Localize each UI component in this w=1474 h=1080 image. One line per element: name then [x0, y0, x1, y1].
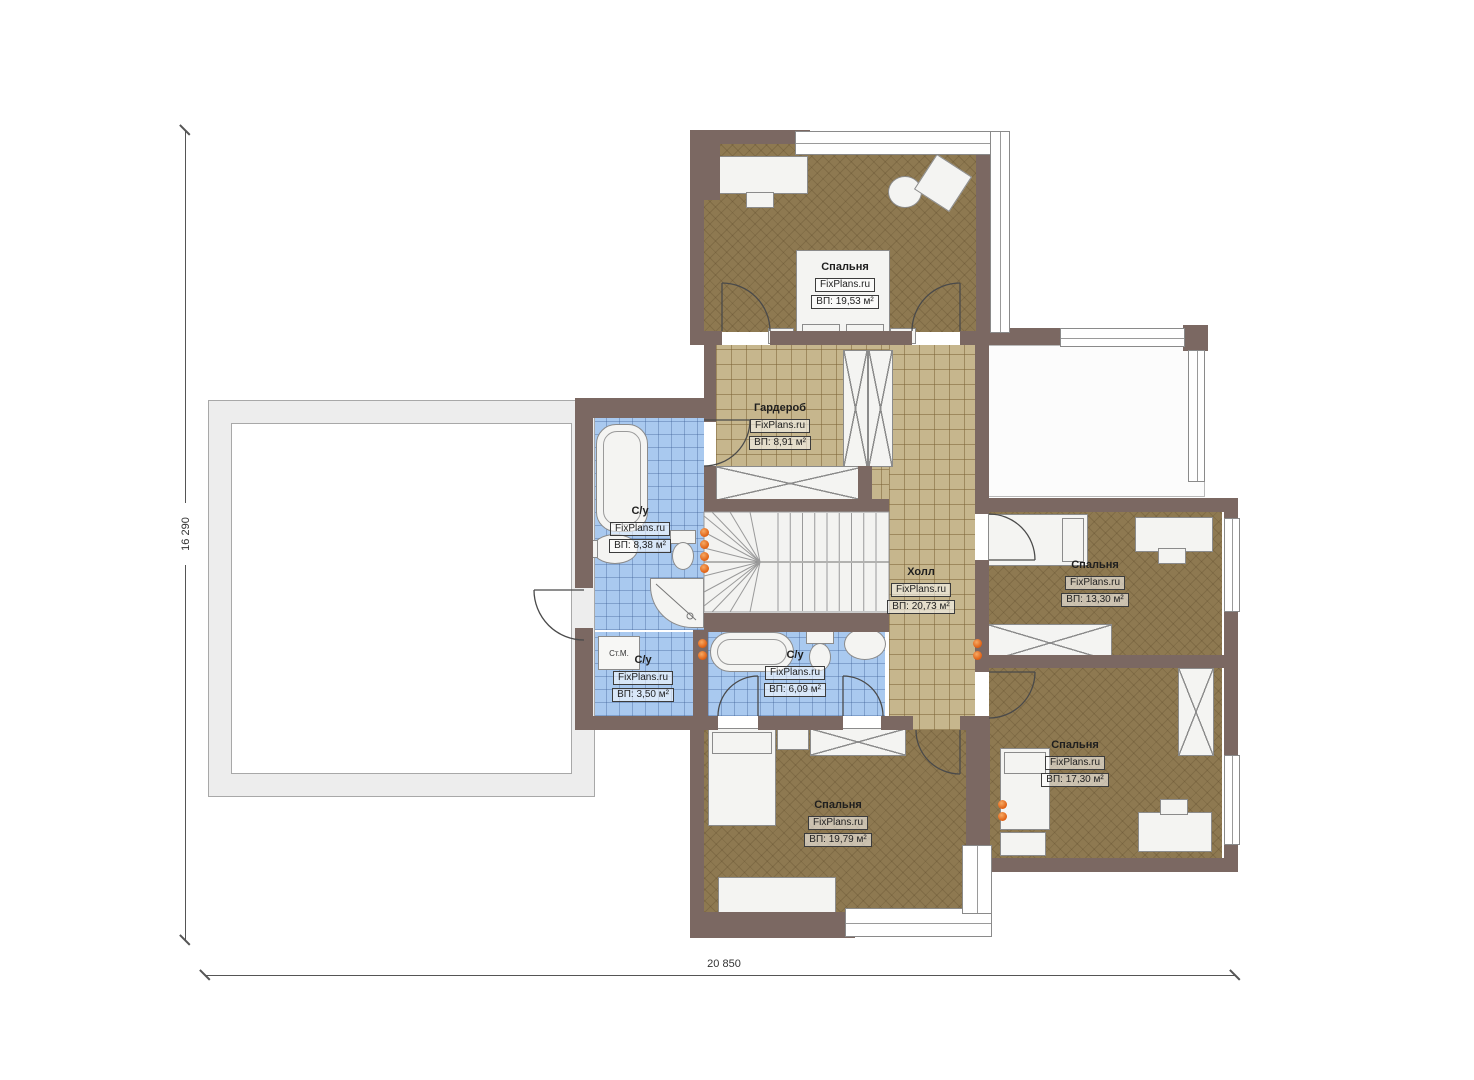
dimension-label-width: 20 850: [675, 958, 773, 970]
watermark: FixPlans.ru: [750, 419, 810, 433]
watermark: FixPlans.ru: [613, 671, 673, 685]
radiator-dot: [700, 540, 709, 549]
room-label-bathroom-left: С/у FixPlans.ru ВП: 8,38 м²: [585, 506, 695, 553]
room-name: Спальня: [1020, 740, 1130, 751]
room-name: Спальня: [790, 262, 900, 273]
staircase: [704, 512, 889, 612]
room-area: ВП: 20,73 м²: [887, 600, 954, 614]
watermark: FixPlans.ru: [891, 583, 951, 597]
radiator-dot: [700, 528, 709, 537]
room-area: ВП: 6,09 м²: [764, 683, 826, 697]
room-name: Спальня: [1040, 560, 1150, 571]
dimension-line-horizontal: [205, 975, 1235, 976]
room-label-bedroom-bottom: Спальня FixPlans.ru ВП: 19,79 м²: [783, 800, 893, 847]
room-name: Спальня: [783, 800, 893, 811]
room-label-bathroom-small: С/у FixPlans.ru ВП: 3,50 м²: [588, 655, 698, 702]
room-label-bathroom-middle: С/у FixPlans.ru ВП: 6,09 м²: [740, 650, 850, 697]
room-area: ВП: 3,50 м²: [612, 688, 674, 702]
room-name: Гардероб: [725, 403, 835, 414]
room-label-bedroom-right: Спальня FixPlans.ru ВП: 13,30 м²: [1040, 560, 1150, 607]
room-label-bedroom-top: Спальня FixPlans.ru ВП: 19,53 м²: [790, 262, 900, 309]
room-area: ВП: 17,30 м²: [1041, 773, 1108, 787]
dimension-label-height: 16 290: [180, 503, 192, 565]
room-name: С/у: [585, 506, 695, 517]
floor-plan-canvas: Ст.М.: [0, 0, 1474, 1080]
radiator-dot: [698, 639, 707, 648]
watermark: FixPlans.ru: [1065, 576, 1125, 590]
radiator-dot: [698, 651, 707, 660]
radiator-dot: [700, 552, 709, 561]
room-name: Холл: [866, 567, 976, 578]
watermark: FixPlans.ru: [610, 522, 670, 536]
room-area: ВП: 8,38 м²: [609, 539, 671, 553]
room-name: С/у: [588, 655, 698, 666]
watermark: FixPlans.ru: [765, 666, 825, 680]
room-name: С/у: [740, 650, 850, 661]
room-label-bedroom-bottom-right: Спальня FixPlans.ru ВП: 17,30 м²: [1020, 740, 1130, 787]
room-area: ВП: 8,91 м²: [749, 436, 811, 450]
room-area: ВП: 19,79 м²: [804, 833, 871, 847]
shower-detail: [656, 584, 696, 620]
radiator-dot: [973, 639, 982, 648]
watermark: FixPlans.ru: [1045, 756, 1105, 770]
room-label-wardrobe: Гардероб FixPlans.ru ВП: 8,91 м²: [725, 403, 835, 450]
room-label-hall: Холл FixPlans.ru ВП: 20,73 м²: [866, 567, 976, 614]
radiator-dot: [998, 812, 1007, 821]
watermark: FixPlans.ru: [808, 816, 868, 830]
room-area: ВП: 19,53 м²: [811, 295, 878, 309]
watermark: FixPlans.ru: [815, 278, 875, 292]
radiator-dot: [700, 564, 709, 573]
radiator-dot: [998, 800, 1007, 809]
radiator-dot: [973, 651, 982, 660]
room-area: ВП: 13,30 м²: [1061, 593, 1128, 607]
doors-stairs-overlay: [0, 0, 1474, 1080]
